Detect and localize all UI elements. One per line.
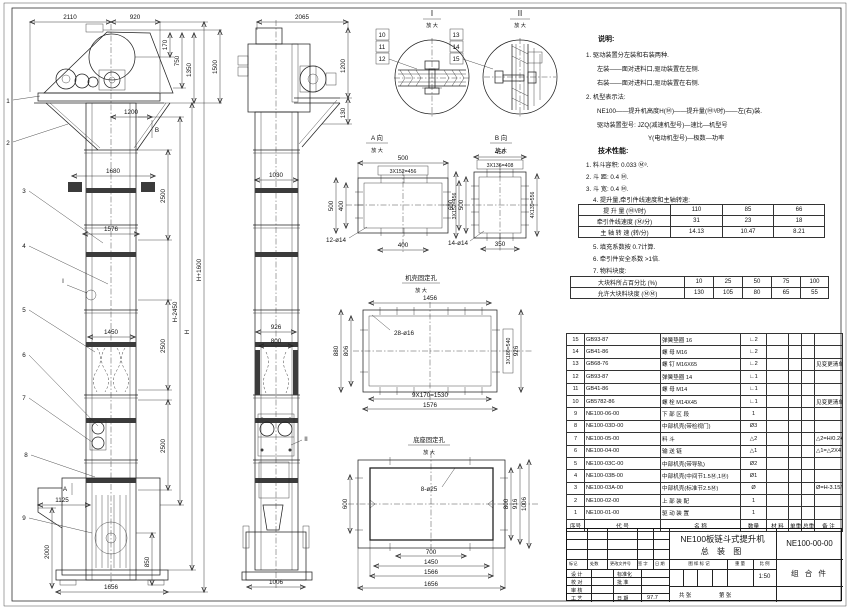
base-dim-916: 916 [512, 498, 519, 509]
bom-remark: 见变更清单 [815, 395, 843, 407]
tech-line: 3. 斗 宽: 0.4 Ⓜ. [586, 184, 629, 193]
lump-value: 80 [743, 288, 772, 299]
bom-remark [815, 420, 843, 432]
front-view-callouts: 1 2 3 4 5 6 7 8 9 I [6, 96, 108, 533]
bom-code: GB93-87 [585, 334, 661, 346]
view-b-detail: B 向 放 大 450 3X136=408 600 500 4X139=556 … [448, 133, 538, 252]
lump-value: 25 [714, 277, 743, 288]
bom-no: 2 [567, 495, 585, 507]
callout-1: 1 [6, 98, 10, 105]
view-a-holes: 12-ø14 [326, 237, 346, 244]
detail-i-callout-10: 10 [378, 32, 386, 39]
scale-value: 1:50 [753, 574, 776, 580]
dim-1125: 1125 [55, 497, 69, 504]
base-holes-detail: 底座固定孔 放 大 8-ø25 600 800 916 1006 700 145… [342, 435, 540, 588]
bom-code: NE100-03A-00 [585, 482, 661, 494]
bom-remark [815, 383, 843, 395]
dim-1200: 1200 [124, 109, 139, 116]
rev-col-sign: 签 字 [638, 561, 648, 567]
bom-row: 3NE100-03A-00中部机壳(标准节2.5Ⓜ)ØØ=H-3.15/2.5 [567, 482, 843, 494]
detail-i-callout-11: 11 [379, 44, 386, 51]
casing-holes-title: 机壳固定孔 [405, 273, 437, 282]
capacity-value: 85 [723, 205, 774, 216]
capacity-value: 31 [671, 216, 723, 227]
view-a-scale: 放 大 [371, 146, 383, 154]
detail-i-view: I 放 大 10 11 12 [376, 9, 470, 118]
dim-920: 920 [130, 14, 141, 21]
bom-row: 1NE100-01-00驱 动 装 置1 [567, 507, 843, 519]
detail-i-label: I [431, 9, 433, 18]
note-line: 驱动装置型号: JZQ(减速机型号)—速比—机型号 [597, 120, 728, 129]
role-approve: 批 准 [617, 579, 628, 586]
sheets-total: 共 张 [679, 591, 691, 599]
detail-i-scale: 放 大 [426, 21, 438, 29]
tech-line: 1. 料斗容积: 0.033 Ⓜ³. [586, 160, 648, 169]
lump-size-table: 大块料所占百分比 (%) 10 25 50 75 100 允许大块料块度 (ⓂⓂ… [570, 276, 829, 299]
bom-row: 12GB93-87弹簧垫圈 14∟1 [567, 371, 843, 383]
callout-4: 4 [22, 243, 26, 250]
dim-1350: 1350 [186, 63, 193, 78]
detail-ii-label: II [518, 9, 522, 18]
callout-2: 2 [6, 140, 10, 147]
note-line: Y(电动机型号)—极数—功率 [648, 133, 724, 142]
lump-value: 55 [801, 288, 829, 299]
bom-qty: △2 [741, 433, 767, 445]
casing-dim-bottom: 1576 [423, 402, 438, 409]
bom-no: 5 [567, 457, 585, 469]
note-line: 1. 驱动装置分左装和右装两种. [586, 50, 669, 59]
role-design: 设 计 [571, 571, 582, 578]
dim-850: 850 [144, 556, 151, 567]
bom-no: 13 [567, 358, 585, 370]
date-value: 97.7 [647, 595, 658, 601]
bom-code: GB41-86 [585, 346, 661, 358]
dim-1450: 1450 [104, 329, 119, 336]
bom-no: 7 [567, 433, 585, 445]
dim-1006: 1006 [269, 579, 284, 586]
bom-name: 中部机壳(带检视门) [661, 420, 741, 432]
bom-code: NE100-02-00 [585, 495, 661, 507]
casing-dim-top: 1456 [423, 295, 438, 302]
callout-9: 9 [22, 515, 26, 522]
rev-col-doc: 更改文件号 [610, 561, 631, 567]
capacity-value: 10.47 [723, 227, 774, 238]
bom-name: 上 部 装 配 [661, 495, 741, 507]
bom-no: 9 [567, 408, 585, 420]
base-dim-1450: 1450 [424, 559, 439, 566]
capacity-value: 23 [723, 216, 774, 227]
bom-row: 11GB41-86螺 母 M14∟1 [567, 383, 843, 395]
lump-value: 10 [685, 277, 714, 288]
dim-2000: 2000 [44, 545, 51, 560]
role-check: 校 对 [571, 579, 582, 586]
view-a-detail: A 向 放 大 500 3X152=456 500 400 3X152=456 … [326, 133, 460, 252]
tech-line: 6. 牵引件安全系数 >1倍. [593, 254, 660, 263]
casing-holes-detail: 机壳固定孔 放 大 1456 28-ø16 880 806 3X180=540 … [333, 273, 532, 409]
capacity-value: 18 [774, 216, 825, 227]
view-b-dim-left: 600 [448, 199, 455, 210]
callout-8: 8 [24, 452, 28, 459]
lump-value: 100 [801, 277, 829, 288]
bom-qty: ∟2 [741, 346, 767, 358]
view-b-dim-left-inner: 500 [458, 199, 465, 210]
lump-row-label: 允许大块料块度 (ⓂⓂ) [571, 288, 685, 299]
capacity-row-label: 提 升 量 (Ⓜ³/时) [579, 205, 671, 216]
part-type: 组 合 件 [776, 568, 843, 579]
role-date-label: 日 期 [617, 595, 628, 602]
drawing-number: NE100-00-00 [776, 539, 843, 548]
side-elevation-view: II [238, 20, 340, 588]
drawing-sheet: 2110 920 170 750 1350 1500 1200 B 1680 2… [0, 0, 850, 609]
notes-heading: 说明: [598, 34, 614, 44]
detail-ii-callout-13: 13 [452, 32, 460, 39]
tech-heading: 技术性能: [598, 146, 628, 156]
view-a-title: A 向 [371, 133, 383, 142]
bom-row: 10GB5782-86螺 栓 M14X45∟1见变更清单 [567, 395, 843, 407]
bom-qty: ∟1 [741, 395, 767, 407]
bom-remark: Ø=H-3.15/2.5 [815, 482, 843, 494]
bom-row: 4NE100-03B-00中部机壳(中间节1.5Ⓜ,1Ⓜ)Ø1 [567, 470, 843, 482]
dim-2500-b: 2500 [160, 339, 167, 354]
view-b-holes: 14-ø14 [448, 240, 468, 247]
lump-value: 105 [714, 288, 743, 299]
bom-name: 螺 母 M14 [661, 383, 741, 395]
detail-ii-callout-14: 14 [452, 44, 460, 51]
bom-qty: 1 [741, 507, 767, 519]
capacity-row-label: 牵引件线速度 (Ⓜ/分) [579, 216, 671, 227]
casing-dim-left-inner: 806 [343, 345, 350, 356]
side-view-dimensions: 2065 1200 130 1030 926 800 1006 [247, 14, 352, 587]
bom-row: 13GB68-76螺 钉 M16X65∟2见变更清单 [567, 358, 843, 370]
role-process: 工 艺 [571, 595, 582, 602]
base-holes-count: 8-ø25 [421, 486, 438, 493]
dim-side-1200: 1200 [340, 59, 347, 74]
capacity-value: 110 [671, 205, 723, 216]
base-dim-1656: 1656 [424, 581, 439, 588]
bom-name: 中部机壳(标准节2.5Ⓜ) [661, 482, 741, 494]
callout-3: 3 [22, 188, 26, 195]
bom-code: NE100-01-00 [585, 507, 661, 519]
bom-qty: 1 [741, 495, 767, 507]
callout-7: 7 [22, 395, 26, 402]
dim-1576: 1576 [104, 226, 119, 233]
bom-code: GB93-87 [585, 371, 661, 383]
bom-qty: Ø3 [741, 420, 767, 432]
bom-remark: 见变更清单 [815, 358, 843, 370]
bom-row: 7NE100-05-00料 斗△2△2=H/0.2+5.75 [567, 433, 843, 445]
title-block: 标记 处数 更改文件号 签 字 日 期 设 计 校 对 审 核 工 艺 标准化 … [566, 528, 842, 601]
bom-name: 螺 钉 M16X65 [661, 358, 741, 370]
bom-qty: Ø [741, 482, 767, 494]
dim-1656: 1656 [104, 584, 119, 591]
bom-qty: Ø1 [741, 470, 767, 482]
base-dim-1006: 1006 [521, 497, 528, 512]
casing-holes-count: 28-ø16 [394, 330, 414, 337]
bom-row: 14GB41-86螺 母 M16∟2 [567, 346, 843, 358]
bom-qty: ∟1 [741, 383, 767, 395]
bom-name: 螺 栓 M14X45 [661, 395, 741, 407]
bom-no: 12 [567, 371, 585, 383]
casing-dim-bottom-pitch: 9X170=1530 [412, 392, 448, 399]
base-dim-1566: 1566 [424, 569, 439, 576]
marker-detail-i: I [62, 278, 64, 285]
dim-1030: 1030 [269, 172, 284, 179]
bom-name: 中部机壳(带导轨) [661, 457, 741, 469]
view-b-title: B 向 [495, 133, 507, 142]
sheets-no: 第 张 [719, 591, 731, 599]
bom-name: 料 斗 [661, 433, 741, 445]
dim-926: 926 [271, 324, 282, 331]
sheet-title: 总 装 图 [669, 546, 776, 557]
view-a-dim-bottom: 400 [398, 242, 409, 249]
bom-code: GB68-76 [585, 358, 661, 370]
callout-5: 5 [22, 307, 26, 314]
tech-line: 7. 物料块度: [593, 266, 626, 275]
bom-table: 15GB93-87弹簧垫圈 16∟2 14GB41-86螺 母 M16∟2 13… [566, 333, 843, 532]
view-a-dim-pitch: 3X152=456 [390, 169, 417, 175]
bom-remark [815, 334, 843, 346]
bom-row: 2NE100-02-00上 部 装 配1 [567, 495, 843, 507]
product-title: NE100板链斗式提升机 [669, 533, 776, 545]
bom-name: 输 送 链 [661, 445, 741, 457]
note-line: 2. 机型表示法: [586, 92, 626, 101]
bom-code: GB5782-86 [585, 395, 661, 407]
dim-h-2450: H-2450 [172, 301, 179, 322]
bom-remark [815, 470, 843, 482]
bom-code: NE100-03C-00 [585, 457, 661, 469]
role-standard: 标准化 [617, 571, 632, 578]
bom-code: GB41-86 [585, 383, 661, 395]
bom-code: NE100-04-00 [585, 445, 661, 457]
base-dim-800: 800 [503, 498, 510, 509]
bom-remark: △1=△2X4 [815, 445, 843, 457]
bom-name: 弹簧垫圈 14 [661, 371, 741, 383]
view-b-dim-bottom: 350 [495, 241, 506, 248]
bom-qty: Ø2 [741, 457, 767, 469]
dim-1680: 1680 [106, 168, 121, 175]
bom-row: 8NE100-03D-00中部机壳(带检视门)Ø3 [567, 420, 843, 432]
dim-h-plus-1600: H+1600 [196, 258, 203, 281]
bom-name: 弹簧垫圈 16 [661, 334, 741, 346]
rev-col-date: 日 期 [655, 561, 665, 567]
bom-no: 1 [567, 507, 585, 519]
bom-code: NE100-03D-00 [585, 420, 661, 432]
casing-dim-left: 880 [333, 345, 340, 356]
bom-qty: △1 [741, 445, 767, 457]
bom-no: 6 [567, 445, 585, 457]
rev-col-mark: 标记 [569, 561, 577, 567]
bom-row: 15GB93-87弹簧垫圈 16∟2 [567, 334, 843, 346]
bom-row: 9NE100-06-00下 部 区 段1 [567, 408, 843, 420]
view-b-dim-pitch: 3X136=408 [487, 163, 514, 169]
capacity-row-label: 主 轴 转 速 (转/分) [579, 227, 671, 238]
tech-line: 2. 斗 距: 0.4 Ⓜ. [586, 172, 629, 181]
view-a-dim-top: 500 [398, 155, 409, 162]
lump-value: 75 [772, 277, 801, 288]
bom-name: 中部机壳(中间节1.5Ⓜ,1Ⓜ) [661, 470, 741, 482]
lump-value: 130 [685, 288, 714, 299]
bom-remark [815, 457, 843, 469]
dim-2065: 2065 [295, 14, 310, 21]
bom-remark: △2=H/0.2+5.75 [815, 433, 843, 445]
view-a-dim-left: 500 [328, 200, 335, 211]
weight-label: 重 量 [727, 561, 753, 567]
bom-remark [815, 495, 843, 507]
base-holes-title: 底座固定孔 [413, 435, 445, 444]
casing-dim-right: 926 [513, 345, 520, 356]
bom-no: 10 [567, 395, 585, 407]
note-line: NE100——提升机高度H(Ⓜ)——提升量(Ⓜ³/时)——左(右)装. [597, 106, 762, 115]
detail-ii-scale: 放 大 [514, 21, 526, 29]
view-b-dim-right: 4X139=556 [530, 192, 536, 219]
bom-no: 11 [567, 383, 585, 395]
dim-130: 130 [340, 107, 347, 118]
bom-code: NE100-05-00 [585, 433, 661, 445]
bom-qty: ∟2 [741, 358, 767, 370]
note-line: 左装——面对进料口,驱动装置在左侧. [597, 64, 699, 73]
bom-no: 14 [567, 346, 585, 358]
lump-row-label: 大块料所占百分比 (%) [571, 277, 685, 288]
marker-b: B [155, 127, 159, 134]
dim-2500-c: 2500 [160, 439, 167, 454]
bom-qty: ∟2 [741, 334, 767, 346]
casing-dim-right-pitch: 3X180=540 [506, 338, 512, 365]
bom-name: 下 部 区 段 [661, 408, 741, 420]
bom-remark [815, 408, 843, 420]
bom-no: 8 [567, 420, 585, 432]
base-holes-scale: 放 大 [423, 448, 435, 456]
bom-remark [815, 371, 843, 383]
bom-remark [815, 507, 843, 519]
scale-label: 比 例 [753, 561, 776, 567]
role-audit: 审 核 [571, 587, 582, 594]
bom-code: NE100-06-00 [585, 408, 661, 420]
bom-name: 驱 动 装 置 [661, 507, 741, 519]
dim-800: 800 [271, 338, 282, 345]
marker-detail-ii: II [304, 436, 308, 443]
casing-holes-scale: 放 大 [415, 286, 427, 294]
rev-col-count: 处数 [590, 561, 598, 567]
capacity-value: 66 [774, 205, 825, 216]
dim-750: 750 [174, 55, 181, 66]
bom-row: 5NE100-03C-00中部机壳(带导轨)Ø2 [567, 457, 843, 469]
bom-no: 15 [567, 334, 585, 346]
bom-name: 螺 母 M16 [661, 346, 741, 358]
detail-ii-callout-15: 15 [452, 56, 460, 63]
bom-qty: ∟1 [741, 371, 767, 383]
base-dim-left: 600 [342, 498, 349, 509]
view-b-dim-top: 450 [495, 149, 506, 156]
dim-h: H [184, 329, 191, 334]
bom-qty: 1 [741, 408, 767, 420]
view-a-dim-left-inner: 400 [338, 200, 345, 211]
lump-value: 50 [743, 277, 772, 288]
bom-remark [815, 346, 843, 358]
lump-value: 65 [772, 288, 801, 299]
dim-2500-a: 2500 [160, 189, 167, 204]
detail-i-callout-12: 12 [378, 56, 386, 63]
tech-line: 5. 填充系数按 0.7计算. [593, 242, 655, 251]
bom-row: 6NE100-04-00输 送 链△1△1=△2X4 [567, 445, 843, 457]
stamp-label: 图 样 标 记 [671, 561, 727, 567]
dim-2110: 2110 [63, 14, 77, 21]
capacity-value: 8.21 [774, 227, 825, 238]
base-dim-700: 700 [426, 549, 437, 556]
bom-no: 4 [567, 470, 585, 482]
marker-a: A [63, 486, 68, 493]
bom-code: NE100-03B-00 [585, 470, 661, 482]
dim-1500: 1500 [212, 60, 219, 75]
capacity-table: 提 升 量 (Ⓜ³/时) 110 85 66 牵引件线速度 (Ⓜ/分) 31 2… [578, 204, 825, 238]
capacity-value: 14.13 [671, 227, 723, 238]
dim-170: 170 [162, 39, 169, 50]
tech-line: 4. 提升量,牵引件线速度和主轴转速: [593, 195, 690, 204]
note-line: 右装——面对进料口,驱动装置在右侧. [597, 78, 699, 87]
callout-6: 6 [22, 352, 26, 359]
bom-no: 3 [567, 482, 585, 494]
